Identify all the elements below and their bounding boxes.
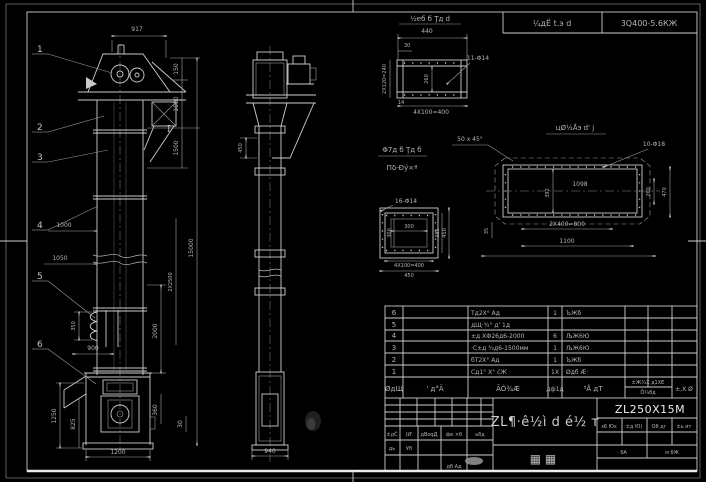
- inlet-section-detail: Φ7д б Ţд б Пδ-Đý×ª 16-Φ14 300 300 385 45…: [378, 146, 449, 279]
- process-note: ¼дЁ t.э d: [533, 18, 572, 28]
- dim-15000: 15000: [188, 238, 195, 257]
- header-weight-bottom: Ô¾бд: [640, 389, 656, 396]
- part-material: Øдб Æ·: [566, 369, 588, 376]
- part-qty: 1: [553, 345, 557, 352]
- inlet-title-1: Φ7д б Ţд б: [382, 146, 421, 154]
- dim-392: 392: [545, 188, 551, 198]
- balloon-6: 6: [37, 340, 43, 350]
- sheet-frame: [0, 0, 706, 482]
- model-block: ZL250X15M з6 Юх ±д Ю) Об дг ±ь ит · бА м…: [597, 403, 697, 458]
- dim-825: 825: [70, 418, 77, 430]
- plan-view-detail: цØ½Åэ d' ј 50 x 45° 10-Φ18 1098 392 260 …: [452, 123, 670, 256]
- parts-row-4: 4 ±д ХФ26д6-2000 6 ЉЖ6Ю: [392, 332, 590, 340]
- dim-2x120: 2X120=240: [382, 64, 388, 94]
- title-block: ±дČ (И' дВоqД фе ×б ьбд дь Уб дб Ад ZL¶·…: [385, 398, 697, 470]
- parts-row-6: 6 Тд2Х° Ад 1 ЪЖб: [392, 309, 582, 317]
- parts-list-table: 6 Тд2Х° Ад 1 ЪЖб 5 дЩ·¾° д' 1д 4 ±д ХФ26…: [385, 306, 697, 398]
- dim-450-v: 450: [442, 228, 448, 238]
- part-no: 3: [392, 344, 396, 352]
- drawing-canvas: ¼дЁ t.э d 3Q400-5.6КЖ 1 2 3 4 5: [0, 0, 706, 482]
- dim-900: 900: [87, 345, 99, 352]
- parts-row-2: 2 бТ2Х° Ад 1 ЪЖб: [392, 356, 582, 364]
- inlet-title-2: Пδ-Đý×ª: [387, 164, 418, 172]
- scale-header: ±ь ит: [677, 424, 692, 430]
- rev-count: (И': [405, 432, 412, 438]
- part-no: 4: [392, 332, 397, 340]
- drawing-type-stamp: ▦ ▦: [530, 452, 557, 466]
- dim-917: 917: [131, 26, 143, 33]
- plan-title: цØ½Åэ d' ј: [556, 123, 595, 132]
- dim-35: 35: [484, 228, 490, 234]
- holes-16-14: 16-Φ14: [395, 198, 417, 205]
- boot-section: [64, 373, 155, 449]
- revision-grid: ±дČ (И' дВоqД фе ×б ьбд дь Уб дб Ад: [385, 398, 493, 470]
- item-balloons: 1 2 3 4 5 6 I: [32, 45, 171, 384]
- sign-approve: дб Ад: [446, 464, 462, 470]
- dim-450-side: 450: [238, 143, 244, 153]
- dim-350: 350: [71, 321, 77, 331]
- dim-4x100-inlet: 4X100=400: [394, 263, 424, 269]
- drawing-title: ZL¶·ê½ì d é½ т: [491, 415, 600, 430]
- spec-note: 3Q400-5.6КЖ: [621, 19, 678, 28]
- drive-arrow: [86, 77, 97, 89]
- holes-10-18: 10-Φ18: [643, 141, 665, 148]
- dim-1200: 1200: [110, 449, 125, 456]
- rev-date: ьбд: [475, 432, 485, 438]
- header-qty: дф1д: [546, 386, 563, 393]
- part-name: ·С±д ¾д6-1500мм: [471, 345, 528, 352]
- dim-1500: 1500: [173, 140, 180, 155]
- section-mark-label: I: [167, 125, 171, 135]
- dim-260-plan: 260: [646, 187, 652, 197]
- model-number: ZL250X15M: [615, 403, 685, 416]
- rev-doc: фе ×б: [446, 432, 462, 438]
- chamfer-note: 50 x 45°: [457, 136, 483, 143]
- holes-11-14: 11-Φ14: [467, 55, 489, 62]
- dim-1098: 1098: [572, 181, 587, 188]
- header-code: ' д°Ä: [426, 384, 443, 393]
- stage-header-2: ±д Ю): [626, 424, 643, 430]
- part-material: ЉЖ6Ю: [566, 333, 590, 340]
- bucket-chain: [90, 312, 97, 341]
- part-qty: 6: [553, 333, 557, 340]
- part-qty: 1: [553, 310, 557, 317]
- stage-header-1: з6 Юх: [601, 424, 617, 430]
- dim-300-v: 300: [387, 228, 393, 238]
- front-elevation-view: [64, 44, 186, 452]
- part-material: ЪЖб: [566, 357, 581, 364]
- part-no: 1: [392, 368, 396, 376]
- parts-row-3: 3 ·С±д ¾д6-1500мм 1 ЉЖ6Ю: [392, 344, 590, 352]
- balloon-2: 2: [37, 123, 43, 133]
- balloon-5: 5: [37, 272, 43, 282]
- parts-row-5: 5 дЩ·¾° д' 1д: [392, 321, 510, 329]
- weight-header: Об дг: [652, 424, 667, 430]
- dim-440: 440: [421, 28, 433, 35]
- dim-2000: 2000: [152, 323, 159, 338]
- part-no: 6: [392, 309, 397, 317]
- dim-360: 360: [152, 404, 159, 416]
- sign-check: Уб: [406, 446, 412, 452]
- header-note: ±,Х Ø: [675, 386, 693, 393]
- dim-450-w: 450: [404, 273, 414, 279]
- sheet-number: · бА: [617, 450, 627, 456]
- header-material: ³Å дТ: [584, 384, 604, 393]
- dim-30-flange: 30: [404, 43, 410, 49]
- part-material: ЪЖб: [566, 310, 581, 317]
- dim-14: 14: [398, 100, 404, 106]
- sheet-total: м бЖ: [665, 450, 679, 456]
- balloon-1: 1: [37, 45, 43, 55]
- part-name: Тд2Х° Ад: [470, 310, 500, 317]
- parts-header-row: ØдЩ ' д°Ä ÃÓ¾Æ дф1д ³Å дТ ±Ж¾Х д1ХЕ Ô¾бд…: [385, 380, 693, 396]
- dim-385: 385: [435, 228, 441, 238]
- balloon-4: 4: [37, 221, 43, 231]
- dim-1100: 1100: [559, 238, 574, 245]
- part-name: дЩ·¾° д' 1д: [471, 322, 510, 329]
- signature-blob: [465, 457, 483, 465]
- dim-1250: 1250: [51, 408, 58, 423]
- dim-2x400: 2X400=800: [549, 221, 585, 228]
- part-qty: 1X: [551, 369, 559, 376]
- part-no: 2: [392, 356, 396, 364]
- part-name: Сд1° Х° ćЖ: [471, 369, 507, 376]
- drawing-title-cell: ZL¶·ê½ì d é½ т ▦ ▦: [491, 415, 600, 466]
- dim-1000-l: 1000: [56, 222, 71, 229]
- sign-design: дь: [389, 446, 395, 452]
- side-elevation-view: 450 940: [238, 46, 321, 462]
- dim-2x2500: 2X2500: [168, 272, 174, 291]
- dim-1050: 1050: [52, 255, 67, 262]
- header-bar: ¼дЁ t.э d 3Q400-5.6КЖ: [503, 12, 697, 33]
- dim-150: 150: [173, 63, 180, 75]
- part-qty: 1: [553, 357, 557, 364]
- dim-940: 940: [264, 448, 276, 455]
- header-name: ÃÓ¾Æ: [496, 384, 520, 393]
- dim-1000-r: 1000: [173, 96, 180, 111]
- dim-470: 470: [662, 187, 668, 197]
- parts-row-1: 1 Сд1° Х° ćЖ 1X Øдб Æ·: [392, 368, 589, 376]
- header-weight-top: ±Ж¾Х д1ХЕ: [632, 380, 665, 386]
- part-name: бТ2Х° Ад: [471, 357, 499, 364]
- part-material: ЉЖ6Ю: [566, 345, 590, 352]
- dim-260-flange: 260: [424, 74, 430, 84]
- flange-detail-title: ½еб б Ţд d: [410, 15, 450, 23]
- dim-30: 30: [177, 420, 184, 428]
- part-no: 5: [392, 321, 396, 329]
- cad-drawing-sheet: ¼дЁ t.э d 3Q400-5.6КЖ 1 2 3 4 5: [0, 0, 706, 482]
- dim-4x100-flange: 4X100=400: [413, 109, 449, 116]
- header-no: ØдЩ: [385, 385, 403, 393]
- balloon-3: 3: [37, 153, 43, 163]
- rev-zone: дВоqД: [420, 432, 437, 438]
- flange-plate-detail: ½еб б Ţд d 440 30 260 2X120=240 14 4X100…: [382, 15, 489, 116]
- rev-mark: ±дČ: [386, 431, 398, 438]
- part-name: ±д ХФ26д6-2000: [471, 333, 525, 340]
- dim-300-h: 300: [404, 224, 414, 230]
